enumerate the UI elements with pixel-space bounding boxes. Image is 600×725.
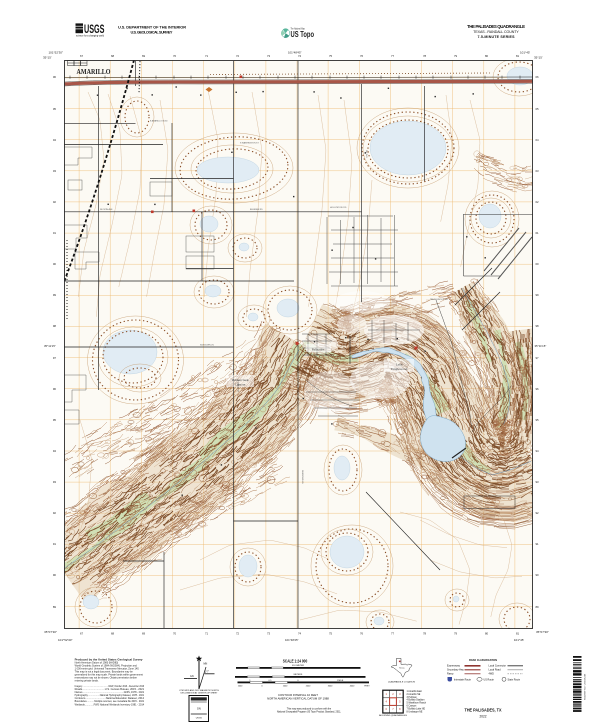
- svg-text:79: 79: [454, 54, 458, 58]
- svg-text:90: 90: [53, 573, 57, 577]
- svg-text:68: 68: [111, 632, 115, 636]
- svg-text:72: 72: [236, 632, 240, 636]
- svg-text:State Route: State Route: [508, 678, 521, 681]
- svg-text:Lake: Lake: [396, 363, 403, 367]
- svg-text:101°45': 101°45': [514, 638, 525, 642]
- svg-text:35°07'30": 35°07'30": [536, 630, 549, 634]
- svg-text:01: 01: [536, 231, 540, 235]
- svg-text:This map was produced to confo: This map was produced to conform with th…: [287, 707, 332, 710]
- svg-text:E AMARILLO BLVD: E AMARILLO BLVD: [150, 120, 168, 123]
- svg-text:MN: MN: [204, 663, 208, 666]
- svg-text:ADJOINING QUADRANGLES: ADJOINING QUADRANGLES: [379, 714, 407, 717]
- svg-text:Timbercreek: Timbercreek: [231, 378, 249, 382]
- svg-text:99: 99: [536, 293, 540, 297]
- svg-text:80: 80: [485, 632, 489, 636]
- svg-text:69: 69: [142, 54, 146, 58]
- svg-text:89: 89: [53, 605, 57, 609]
- svg-text:S OSAGE ST: S OSAGE ST: [237, 380, 240, 393]
- svg-text:93: 93: [536, 480, 540, 484]
- svg-text:DECLINATION AT CENTER OF SHEET: DECLINATION AT CENTER OF SHEET: [181, 691, 219, 694]
- svg-text:S WASHINGTON ST: S WASHINGTON ST: [240, 142, 259, 145]
- svg-text:1 Amarillo East: 1 Amarillo East: [407, 690, 423, 693]
- svg-text:4 Buffalo Stadium: 4 Buffalo Stadium: [407, 699, 425, 702]
- svg-text:HOLLYWOOD RD: HOLLYWOOD RD: [330, 207, 347, 209]
- svg-text:70: 70: [173, 54, 177, 58]
- svg-text:GN: GN: [197, 707, 201, 711]
- svg-text:92: 92: [536, 511, 540, 515]
- svg-text:2 Amarillo SE: 2 Amarillo SE: [407, 693, 421, 696]
- svg-text:ROAD CLASSIFICATION: ROAD CLASSIFICATION: [469, 658, 497, 662]
- svg-text:THE PALISADES, TX: THE PALISADES, TX: [465, 708, 503, 713]
- svg-text:SCALE 1:24 000: SCALE 1:24 000: [283, 658, 308, 663]
- svg-text:67: 67: [80, 632, 84, 636]
- svg-text:72: 72: [236, 54, 240, 58]
- svg-text:USGS: USGS: [196, 718, 203, 720]
- svg-text:TEXAS - RANDALL COUNTY: TEXAS - RANDALL COUNTY: [473, 30, 519, 34]
- svg-text:TANGLEWOOD DR: TANGLEWOOD DR: [430, 298, 448, 301]
- svg-text:71: 71: [205, 632, 209, 636]
- svg-text:QUADRANGLE LOCATION: QUADRANGLE LOCATION: [388, 680, 415, 683]
- svg-text:01: 01: [53, 231, 57, 235]
- svg-text:81: 81: [516, 54, 520, 58]
- svg-text:97: 97: [536, 356, 540, 360]
- svg-text:7 Buffalo Lake NE: 7 Buffalo Lake NE: [407, 708, 426, 710]
- svg-text:02: 02: [53, 200, 57, 204]
- svg-text:35°15': 35°15': [43, 56, 52, 60]
- svg-text:73: 73: [267, 632, 271, 636]
- svg-text:70: 70: [173, 632, 177, 636]
- svg-text:8 Umbarger NE: 8 Umbarger NE: [407, 710, 423, 713]
- svg-text:NORTH AMERICAN VERTICAL DATUM: NORTH AMERICAN VERTICAL DATUM OF 1988: [267, 697, 329, 701]
- svg-text:Canyon: Canyon: [235, 383, 246, 387]
- svg-text:98: 98: [53, 324, 57, 328]
- svg-text:35°11'15": 35°11'15": [44, 344, 56, 348]
- svg-text:74: 74: [298, 632, 302, 636]
- svg-text:KILOMETER: KILOMETER: [292, 665, 305, 667]
- svg-text:77: 77: [391, 54, 395, 58]
- svg-text:SE 58TH AVE: SE 58TH AVE: [100, 208, 113, 211]
- svg-text:US Topo: US Topo: [291, 30, 315, 39]
- svg-text:76: 76: [360, 632, 364, 636]
- svg-text:91: 91: [536, 542, 540, 546]
- svg-text:75: 75: [329, 632, 333, 636]
- svg-text:98: 98: [536, 324, 540, 328]
- svg-text:67: 67: [80, 54, 84, 58]
- svg-text:Tanglewood: Tanglewood: [391, 367, 408, 371]
- svg-text:Texas: Texas: [399, 667, 406, 669]
- svg-text:BLESSEN RD: BLESSEN RD: [250, 209, 263, 211]
- svg-text:Ramp: Ramp: [447, 673, 454, 676]
- svg-text:35°07'30": 35°07'30": [44, 630, 57, 634]
- svg-text:92: 92: [53, 511, 57, 515]
- svg-text:5 Washburn Ranch: 5 Washburn Ranch: [407, 702, 427, 705]
- svg-text:74: 74: [298, 54, 302, 58]
- svg-text:78: 78: [423, 54, 427, 58]
- svg-text:79: 79: [454, 632, 458, 636]
- svg-text:Local Connector: Local Connector: [489, 665, 507, 668]
- svg-text:04: 04: [536, 138, 540, 142]
- svg-text:U.S. GEOLOGICAL SURVEY: U.S. GEOLOGICAL SURVEY: [131, 30, 173, 35]
- svg-text:1°7': 1°7': [205, 671, 210, 674]
- svg-text:05: 05: [53, 107, 57, 111]
- svg-text:02: 02: [536, 200, 540, 204]
- svg-text:94: 94: [536, 449, 540, 453]
- svg-text:METERS: METERS: [294, 674, 303, 676]
- svg-text:75: 75: [329, 54, 333, 58]
- svg-text:science for a changing world: science for a changing world: [76, 35, 105, 38]
- svg-text:81: 81: [516, 632, 520, 636]
- svg-text:101°45': 101°45': [520, 51, 531, 55]
- svg-text:00: 00: [536, 262, 540, 266]
- svg-text:SUNDOWN LN: SUNDOWN LN: [301, 470, 303, 484]
- svg-text:Palisades: Palisades: [312, 348, 325, 352]
- svg-text:93: 93: [53, 480, 57, 484]
- svg-text:National Geospatial Program US: National Geospatial Program US Topo Prod…: [277, 710, 342, 713]
- svg-text:95: 95: [536, 418, 540, 422]
- svg-text:Expressway: Expressway: [447, 665, 461, 668]
- svg-text:6 Canyon: 6 Canyon: [407, 706, 418, 708]
- svg-text:03: 03: [536, 169, 540, 173]
- svg-text:101°52'30": 101°52'30": [48, 51, 63, 55]
- svg-text:35°11'15": 35°11'15": [535, 344, 547, 348]
- svg-text:97: 97: [53, 356, 57, 360]
- svg-text:Interstate Route: Interstate Route: [454, 678, 472, 681]
- svg-text:05: 05: [536, 107, 540, 111]
- svg-text:91: 91: [53, 542, 57, 546]
- svg-text:FEET: FEET: [364, 686, 370, 688]
- svg-text:NGA REF NO. USGSX24K: NGA REF NO. USGSX24K: [584, 673, 587, 700]
- svg-text:101°48'45": 101°48'45": [288, 51, 302, 55]
- svg-text:7.5-MINUTE SERIES: 7.5-MINUTE SERIES: [478, 35, 516, 39]
- svg-text:00: 00: [53, 262, 57, 266]
- svg-text:1 MILE: 1 MILE: [337, 680, 344, 682]
- svg-text:101°52'30": 101°52'30": [58, 638, 73, 642]
- svg-text:68: 68: [111, 54, 115, 58]
- svg-text:99: 99: [53, 293, 57, 297]
- svg-text:78: 78: [423, 632, 427, 636]
- svg-text:96: 96: [53, 387, 57, 391]
- svg-text:71: 71: [205, 54, 209, 58]
- svg-text:THE PALISADES QUADRANGLE: THE PALISADES QUADRANGLE: [467, 24, 525, 29]
- svg-text:06: 06: [536, 75, 540, 79]
- svg-text:101°48'45": 101°48'45": [285, 638, 299, 642]
- svg-text:76: 76: [360, 54, 364, 58]
- svg-text:FM 1541: FM 1541: [365, 150, 367, 159]
- svg-text:69: 69: [142, 632, 146, 636]
- svg-text:06: 06: [53, 75, 57, 79]
- svg-text:95: 95: [53, 418, 57, 422]
- svg-text:SUNDOWN LN: SUNDOWN LN: [200, 345, 214, 347]
- svg-text:GN: GN: [190, 675, 194, 678]
- svg-text:AMARILLO: AMARILLO: [77, 67, 111, 76]
- svg-text:Secondary Hwy: Secondary Hwy: [447, 669, 465, 672]
- svg-text:89: 89: [536, 605, 540, 609]
- svg-text:04: 04: [53, 138, 57, 142]
- svg-text:96: 96: [536, 387, 540, 391]
- svg-text:Wetlands.............FWS Natio: Wetlands.............FWS National Wetlan…: [75, 703, 145, 706]
- svg-text:UTM GRID AND 2022 MAGNETIC NOR: UTM GRID AND 2022 MAGNETIC NORTH: [179, 689, 219, 692]
- svg-text:3 Pullman: 3 Pullman: [407, 697, 418, 699]
- svg-text:94: 94: [53, 449, 57, 453]
- svg-text:35°15': 35°15': [534, 56, 543, 60]
- svg-text:4WD: 4WD: [489, 673, 495, 676]
- svg-text:03: 03: [53, 169, 57, 173]
- svg-text:80: 80: [485, 54, 489, 58]
- svg-text:90: 90: [536, 573, 540, 577]
- svg-text:77: 77: [391, 632, 395, 636]
- svg-text:US Route: US Route: [484, 678, 495, 681]
- svg-text:entering private lands.: entering private lands.: [75, 680, 99, 683]
- svg-text:Local Road: Local Road: [489, 669, 502, 672]
- svg-text:2022: 2022: [479, 715, 486, 719]
- svg-text:73: 73: [267, 54, 271, 58]
